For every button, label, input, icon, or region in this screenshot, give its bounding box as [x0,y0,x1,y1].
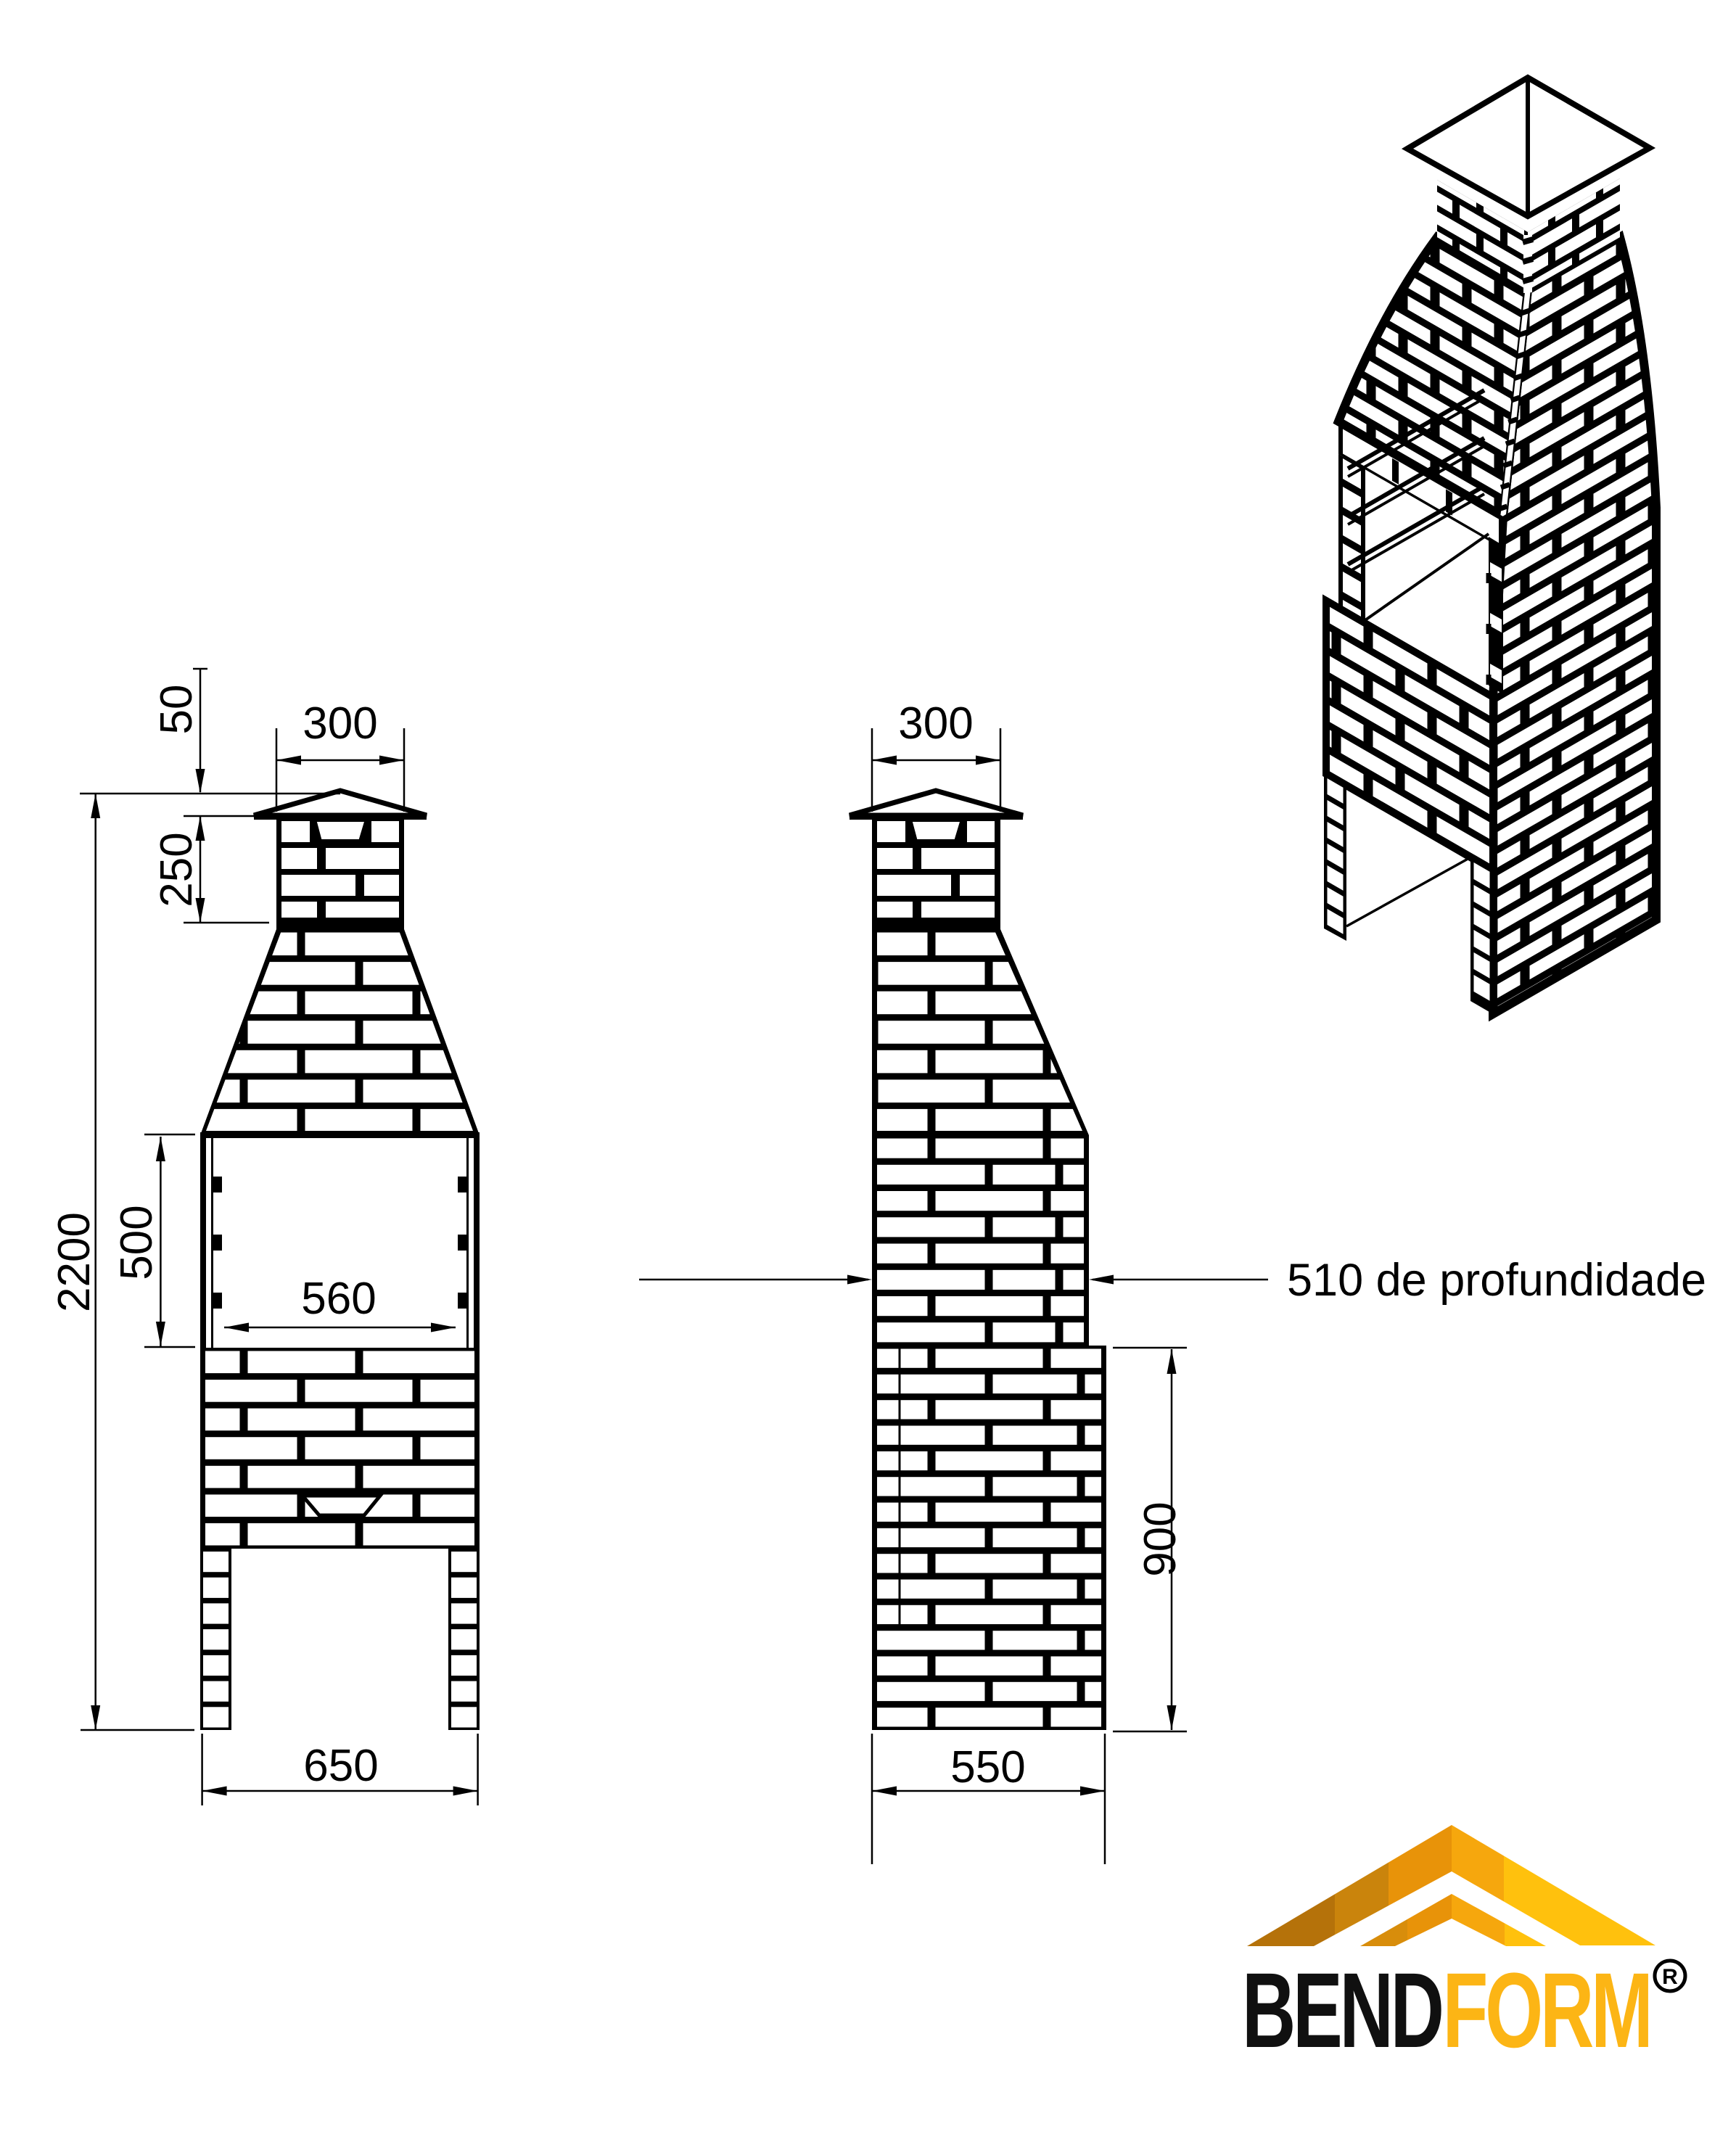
svg-text:550: 550 [950,1742,1025,1792]
svg-text:300: 300 [898,699,973,749]
svg-text:BEND: BEND [1242,1951,1441,2070]
svg-text:900: 900 [1135,1502,1185,1576]
svg-text:R: R [1662,1965,1678,1989]
svg-text:2200: 2200 [49,1212,99,1312]
svg-text:50: 50 [152,685,202,735]
svg-text:510 de profundidade: 510 de profundidade [1287,1255,1706,1306]
svg-text:650: 650 [303,1741,378,1791]
svg-text:250: 250 [152,832,202,907]
svg-text:FORM: FORM [1443,1951,1650,2070]
svg-text:560: 560 [301,1274,376,1324]
svg-text:500: 500 [112,1205,162,1280]
svg-text:300: 300 [303,699,377,749]
